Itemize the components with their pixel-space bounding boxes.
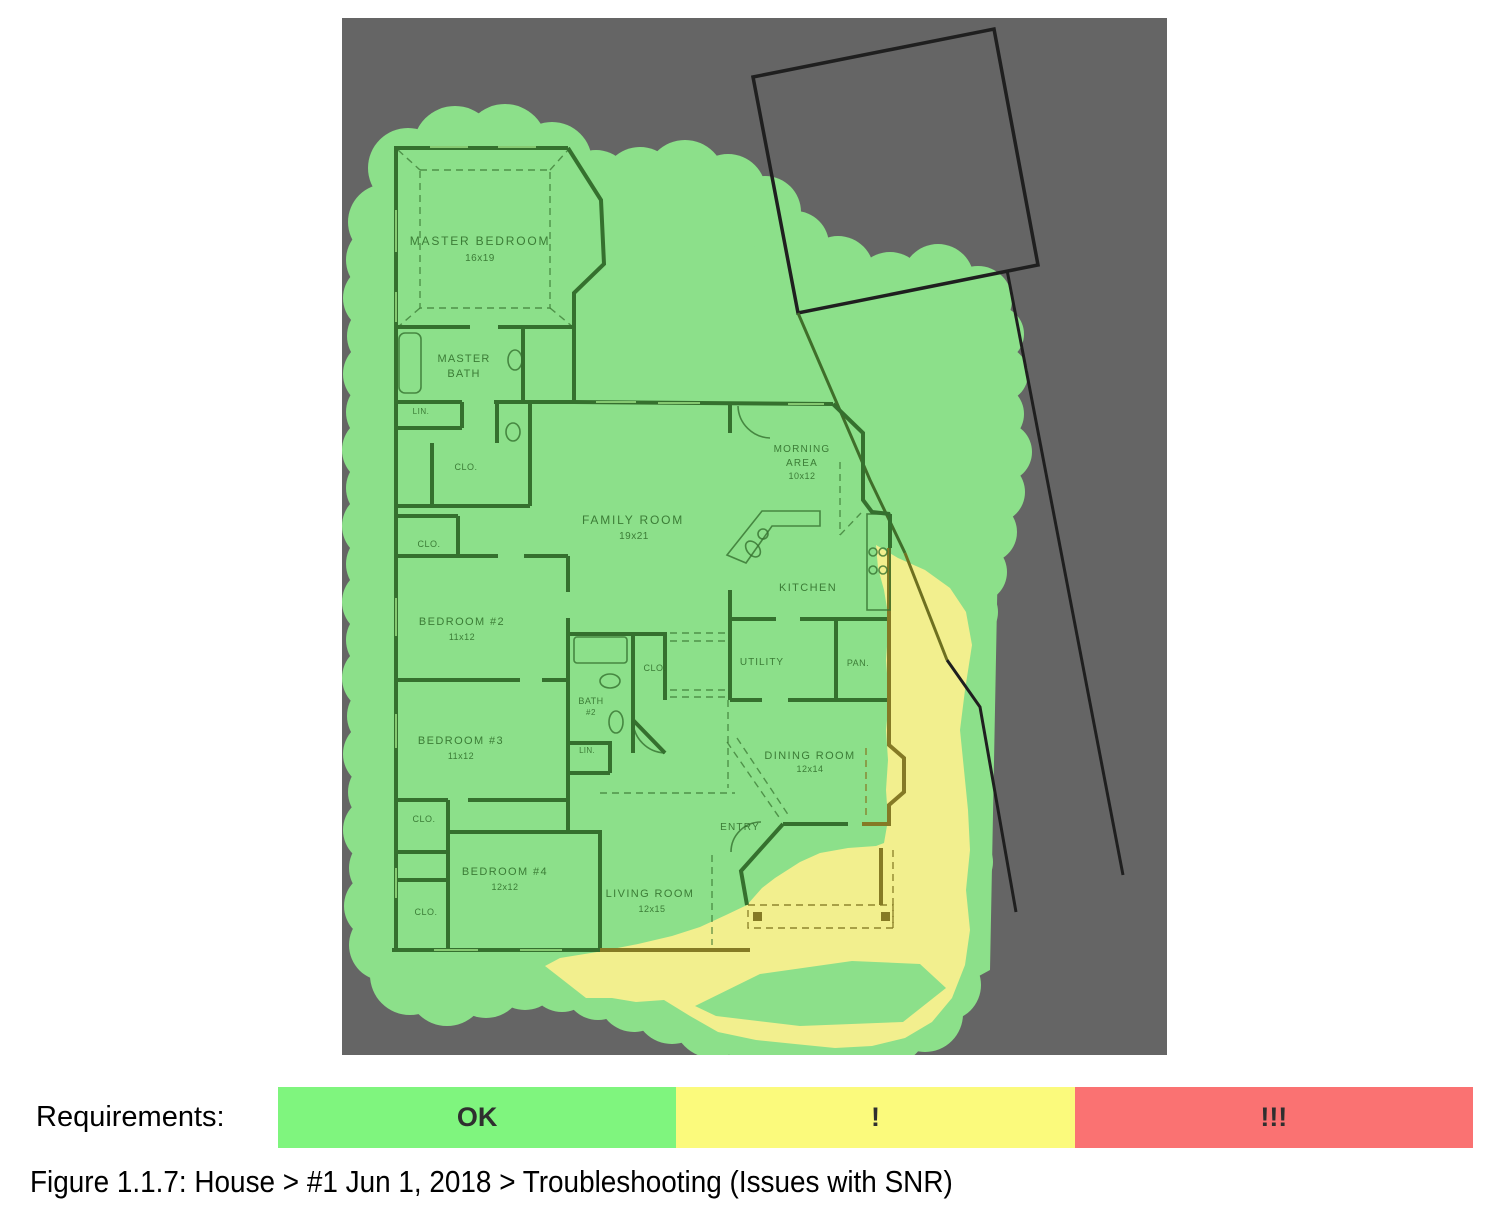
requirements-legend: Requirements: OK!!!! bbox=[0, 1087, 1506, 1148]
room-label: CLO. bbox=[643, 663, 666, 673]
room-label: 12x12 bbox=[491, 882, 518, 892]
room-label: AREA bbox=[786, 458, 818, 469]
room-label: MASTER BEDROOM bbox=[410, 234, 551, 248]
room-label: 16x19 bbox=[465, 253, 495, 264]
room-label: 12x14 bbox=[796, 764, 823, 774]
room-label: BEDROOM #3 bbox=[418, 735, 504, 747]
report-page: MASTER BEDROOM16x19MASTERBATHLIN.CLO.CLO… bbox=[0, 0, 1506, 1228]
room-label: CLO. bbox=[414, 907, 437, 917]
legend-bar: OK!!!! bbox=[278, 1087, 1473, 1148]
legend-title: Requirements: bbox=[36, 1087, 225, 1148]
room-label: 10x12 bbox=[788, 471, 815, 481]
room-label: LIVING ROOM bbox=[606, 888, 695, 900]
figure-caption: Figure 1.1.7: House > #1 Jun 1, 2018 > T… bbox=[30, 1164, 1055, 1200]
room-label: KITCHEN bbox=[779, 582, 837, 594]
room-label: PAN. bbox=[847, 658, 869, 668]
room-label: CLO. bbox=[454, 462, 477, 472]
room-label: MORNING bbox=[774, 444, 831, 455]
room-label: UTILITY bbox=[740, 657, 784, 668]
room-label: 11x12 bbox=[448, 751, 474, 761]
legend-segment-critical: !!! bbox=[1075, 1087, 1473, 1148]
room-label: BATH bbox=[447, 368, 480, 380]
legend-segment-warning: ! bbox=[676, 1087, 1074, 1148]
room-label: CLO. bbox=[417, 539, 440, 549]
room-label: 11x12 bbox=[449, 632, 475, 642]
room-label: FAMILY ROOM bbox=[582, 513, 684, 527]
room-label: LIN. bbox=[579, 746, 595, 755]
room-label: BATH bbox=[578, 696, 603, 706]
heatmap-canvas: MASTER BEDROOM16x19MASTERBATHLIN.CLO.CLO… bbox=[342, 18, 1167, 1055]
room-label: ENTRY bbox=[720, 822, 760, 833]
room-label: LIN. bbox=[413, 407, 430, 416]
room-label: BEDROOM #4 bbox=[462, 866, 548, 878]
room-label: BEDROOM #2 bbox=[419, 616, 505, 628]
room-label: #2 bbox=[586, 708, 596, 717]
room-label: MASTER bbox=[437, 353, 490, 365]
room-label: DINING ROOM bbox=[764, 750, 855, 762]
room-label: 19x21 bbox=[619, 531, 649, 542]
room-label: 12x15 bbox=[638, 904, 665, 914]
legend-segment-ok: OK bbox=[278, 1087, 676, 1148]
room-label: CLO. bbox=[412, 814, 435, 824]
